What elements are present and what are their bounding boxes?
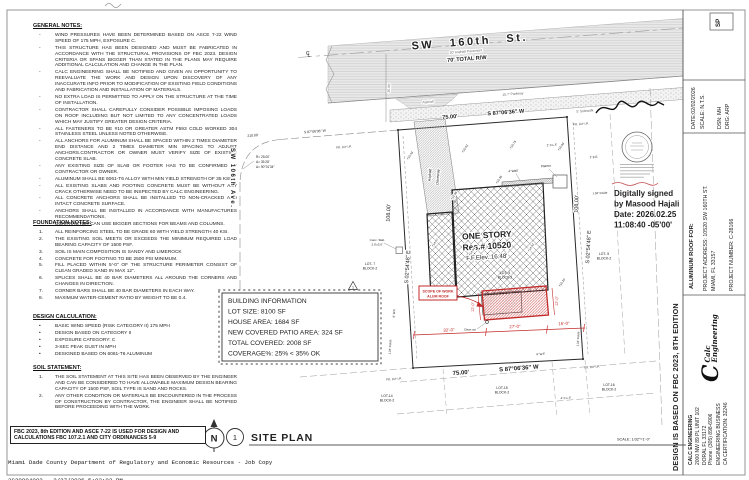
lot-label: LOT-16 — [603, 383, 614, 387]
calc-engineering-logo: C Calc Engineering — [699, 314, 723, 382]
offset-note: 1.50' Inside — [593, 191, 608, 196]
dim-tick — [584, 324, 585, 332]
spot-elevation: +15.75 — [509, 139, 518, 149]
lot-label: BLOCK-2 — [495, 391, 510, 395]
project-number: PROJECT NUMBER: C-28166 — [729, 219, 735, 291]
logo-script: Calc Engineering — [704, 314, 718, 362]
wall-label: 4' Wall — [508, 169, 518, 174]
disclaimer-text-lines — [620, 164, 654, 178]
setback-dim: 16'-0" — [558, 321, 570, 327]
house-wing — [427, 212, 456, 298]
project-address: PROJECT ADDRESS: 10520 SW 160TH ST. — [703, 185, 709, 291]
spot-elevation: +15.62 — [461, 143, 470, 153]
lot-label: BLOCK-2 — [363, 267, 378, 271]
curve-radius-label: R= 25.00' — [256, 155, 270, 159]
county-approval-stamp: Miami Dade County Department of Regulato… — [8, 448, 272, 480]
scope-label: ALUM ROOF — [427, 295, 450, 299]
setback-dim: 32'-0" — [443, 327, 455, 333]
new-patio — [482, 286, 549, 320]
fence-label: 6' W.F. — [392, 308, 396, 317]
lot-label: BLOCK-2 — [380, 399, 395, 403]
project-type: ALUMINUM ROOF FOR: — [689, 223, 695, 289]
east-rw-line — [650, 88, 662, 425]
view-title: SITE PLAN — [251, 432, 313, 444]
lot-line — [400, 361, 656, 382]
building-info-line: HOUSE AREA: 1684 SF — [228, 319, 299, 326]
lot-line — [552, 362, 557, 418]
cleanout — [486, 321, 489, 324]
north-arrowhead — [211, 419, 218, 427]
avenue-label: SW 106th Ave. — [229, 148, 235, 208]
found-pipe-label: FD. 1/2" I.P. — [386, 376, 402, 381]
street-band — [328, 19, 683, 104]
design-basis-note: DESIGN IS BASED ON FBC 2023, 8TH EDITION — [671, 303, 680, 471]
firm-business: ENGINEERING BUSINESS — [717, 403, 723, 465]
lot-label: LOT- 7 — [365, 262, 375, 266]
spot-elevation: +15.93 — [557, 141, 566, 151]
building-info-line: NEW COVERED PATIO AREA: 324 SF — [228, 330, 343, 337]
building-info-line: LOT SIZE: 8100 SF — [228, 309, 286, 316]
titleblock-drg: DRG: ARP — [725, 104, 731, 129]
seal-text-lines — [630, 143, 644, 150]
patio-width-dim: 27'-0" — [509, 324, 521, 330]
engineer-seal-inner — [626, 136, 649, 159]
project-city: MIAMI, FL 33157 — [711, 251, 717, 291]
lot-label: LOT-15 — [496, 386, 507, 390]
pencil-mark — [105, 4, 121, 8]
lot-label: LOT- 5 — [599, 252, 609, 256]
found-pipe-label: FD. 1/2" I.P. — [573, 121, 589, 126]
cleanout-leader — [477, 323, 486, 329]
lot-label: LOT-14 — [381, 394, 392, 398]
revision-number: 1 — [352, 286, 354, 290]
building-info-line: BUILDING INFORMATION — [228, 298, 307, 305]
centerline-symbol: L — [308, 53, 311, 59]
offset-note: 1.02' Inside — [576, 331, 581, 346]
dim-tick — [547, 326, 548, 334]
detail-number: 1 — [233, 433, 237, 442]
scope-label: SCOPE OF WORK — [423, 290, 454, 294]
digital-signature-line: Digitally signed — [614, 189, 673, 198]
patio-depth-dim: 12'-0" — [555, 295, 560, 306]
lot-line — [300, 368, 413, 377]
titleblock-date: DATE:02/02/2026 — [691, 87, 697, 129]
lot-line — [443, 369, 447, 417]
dim-tick — [486, 328, 487, 336]
found-pipe-label: FD. 1/2" I.P. — [584, 364, 600, 369]
lot-label: BLOCK-2 — [597, 257, 612, 261]
digital-signature-line: Date: 2026.02.25 — [614, 210, 677, 219]
patio-depth-dim: 12'-0" — [471, 301, 476, 312]
scale-note: SCALE: 1/32"=1'-0" — [617, 438, 651, 442]
offset-note: 1.05' Inside — [388, 339, 393, 354]
concrete-slab-label: 2.0'x3.0' — [372, 243, 383, 247]
wall-leader — [516, 174, 520, 181]
planter — [553, 175, 567, 188]
parkway-label: 15.7' Parkway — [502, 91, 524, 97]
titleblock-dsn: DSN: MH — [717, 107, 723, 129]
red-scribble — [612, 183, 658, 186]
firm-name: CALC ENGINEERING — [689, 415, 695, 465]
curve-arc-label: A= 39.28' — [256, 160, 270, 164]
east-bearing-label: S 02°54'48" E — [585, 230, 593, 264]
fence-label: 4' C.L.F. — [560, 396, 571, 401]
lot-label: BLOCK-2 — [602, 388, 617, 392]
firm-certification: CA CERTIFICATION: 32246 — [724, 402, 730, 465]
sidewalk-label: 5' Sidewalk — [576, 108, 594, 113]
fbc-code-note: FBC 2023, 8th EDITION AND ASCE 7-22 IS U… — [10, 426, 206, 444]
south-distance-label: 75.00' — [452, 370, 469, 377]
concrete-slab — [396, 247, 403, 254]
spot-elevation: +15.43 — [406, 150, 415, 160]
logo-word: Engineering — [711, 314, 718, 362]
titleblock-scale: SCALE: N.T.S. — [700, 94, 706, 129]
fbc-note-text: FBC 2023, 8th EDITION AND ASCE 7-22 IS U… — [14, 429, 179, 442]
stamp-line: Miami Dade County Department of Regulato… — [8, 460, 272, 466]
corner-marker — [397, 129, 399, 131]
engineer-seal — [622, 132, 652, 162]
curve-delta-label: Δ= 90°01'34" — [256, 165, 275, 169]
rw-extension-line — [280, 130, 398, 140]
driveway-label: Asphalt — [428, 168, 433, 182]
logo-c-icon: C — [699, 364, 723, 382]
west-distance-label: 108.00' — [386, 204, 393, 222]
north-letter: N — [211, 434, 218, 445]
sheet-number: SP — [715, 19, 722, 27]
planter-label: Planter — [541, 164, 552, 169]
building-info-line: TOTAL COVERED: 2008 SF — [228, 340, 311, 347]
west-bearing-label: S 02°54'48" E — [404, 250, 412, 284]
curve-leader — [243, 161, 254, 169]
firm-address: 2000 NW 89 PL UNIT 102 — [696, 407, 702, 465]
found-pipe-label: FD. 1/2" I.P. — [336, 144, 352, 149]
digital-signature-line: by Masood Hajali — [614, 200, 679, 209]
spot-elevation: +15.20 — [558, 277, 567, 287]
dim-tick — [414, 331, 415, 339]
easement-label: 2' E.E. — [590, 155, 599, 160]
drawing-sheet: GENERAL NOTES: WIND PRESSURES HAVE BEEN … — [0, 0, 749, 480]
site-plan-drawing: C L SW 160th St. 20' Asphalt Pavement 70… — [0, 0, 749, 480]
building-info-line: COVERAGE%: 25% < 35% OK — [228, 351, 321, 358]
fence-label: 2' C.L.F. — [547, 143, 558, 148]
ext-distance-label: 210.00' — [247, 133, 259, 138]
cleanout-label: Clean out — [464, 328, 476, 332]
fence-label: 6' W.F. — [536, 352, 545, 356]
concrete-slab-label: Conc. Slab — [370, 238, 385, 242]
corner-marker — [566, 116, 568, 118]
lot-line — [397, 393, 656, 414]
half-rw-label: 35.00' — [387, 83, 391, 93]
digital-signature-line: 11:08:40 -05'00' — [614, 221, 672, 230]
south-bearing-label: S 87°06'36" W — [499, 364, 539, 373]
ext-bearing-label: S 87°06'36" W — [304, 129, 327, 135]
east-distance-label: 108.00' — [574, 195, 581, 213]
firm-phone: Phone: (305) 898-6906 — [709, 414, 715, 465]
slab-leader — [384, 243, 396, 249]
patio-dim-line — [413, 328, 585, 335]
corner-marker — [582, 358, 584, 360]
